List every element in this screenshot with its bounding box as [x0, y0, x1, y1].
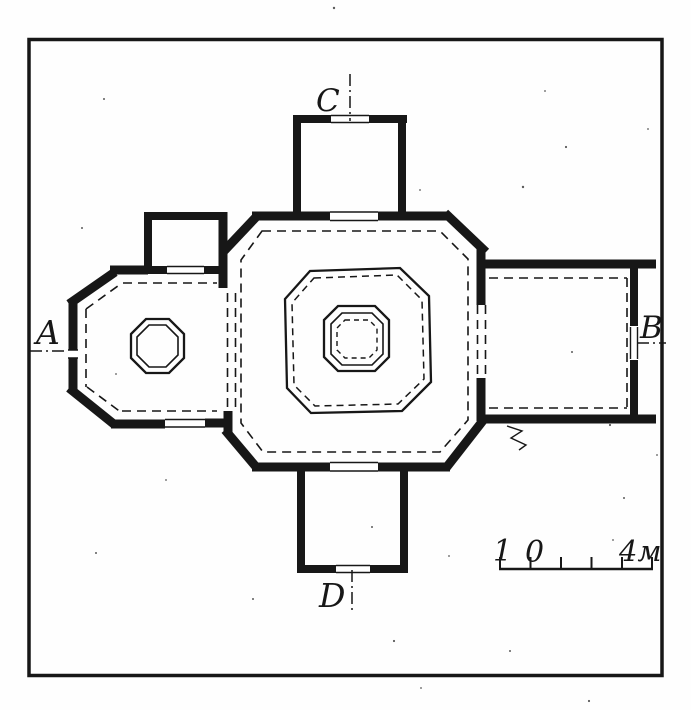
- axis-b-label: B: [639, 310, 663, 346]
- south-door-threshold: [330, 463, 378, 472]
- scribble-mark: [507, 426, 526, 450]
- scale-label-zero: 0: [525, 535, 544, 570]
- scan-noise: [81, 7, 658, 702]
- core-pier-inner: [331, 313, 383, 365]
- nw-chamfer-wall: [224, 215, 258, 251]
- apse-pier-inner: [137, 325, 178, 367]
- south-chapel: [297, 468, 408, 573]
- floor-plan-drawing: A B C D 1 0 4м: [0, 0, 691, 710]
- east-chamber: [477, 261, 656, 450]
- north-chapel: [293, 116, 407, 214]
- apse-sw-chamfer: [69, 388, 115, 425]
- inner-dashed-outline: [241, 231, 468, 452]
- west-apse: [68, 270, 229, 427]
- section-axes: A B C D: [30, 74, 666, 615]
- core-pier-dashed: [337, 320, 377, 358]
- chapel-d-door-threshold: [336, 566, 370, 573]
- scale-label-four-m: 4м: [618, 534, 662, 568]
- chamber-east-window: [631, 327, 638, 359]
- apse-south-door-threshold: [165, 420, 205, 428]
- core-pier-outer: [324, 306, 389, 371]
- apse-pier-outer: [131, 319, 184, 373]
- middle-octagon-dashed: [292, 275, 424, 406]
- northwest-annex: [144, 212, 227, 288]
- annex-door-threshold: [167, 267, 204, 274]
- se-chamfer-wall: [446, 418, 485, 468]
- middle-octagon-outline: [285, 268, 431, 413]
- scale-bar: 1 0 4м: [493, 534, 662, 570]
- axis-c-label: C: [316, 83, 340, 119]
- apse-south-wall: [111, 423, 229, 424]
- axis-a-label: A: [33, 313, 60, 352]
- floor-plan-page: A B C D 1 0 4м: [0, 0, 691, 710]
- apse-dashed-outline: [86, 283, 217, 413]
- apse-nw-chamfer: [69, 272, 115, 304]
- ne-chamfer-wall: [445, 213, 486, 252]
- apse-west-window-gap: [68, 350, 78, 358]
- chamber-dashed-outline: [489, 278, 627, 408]
- east-archway-dashed: [478, 305, 486, 377]
- north-door-threshold: [330, 212, 378, 221]
- sw-chamfer-wall: [225, 430, 257, 468]
- west-archway-dashed: [228, 293, 236, 409]
- axis-d-label: D: [318, 576, 345, 615]
- central-core: [224, 212, 486, 471]
- scale-label-one: 1: [493, 534, 512, 569]
